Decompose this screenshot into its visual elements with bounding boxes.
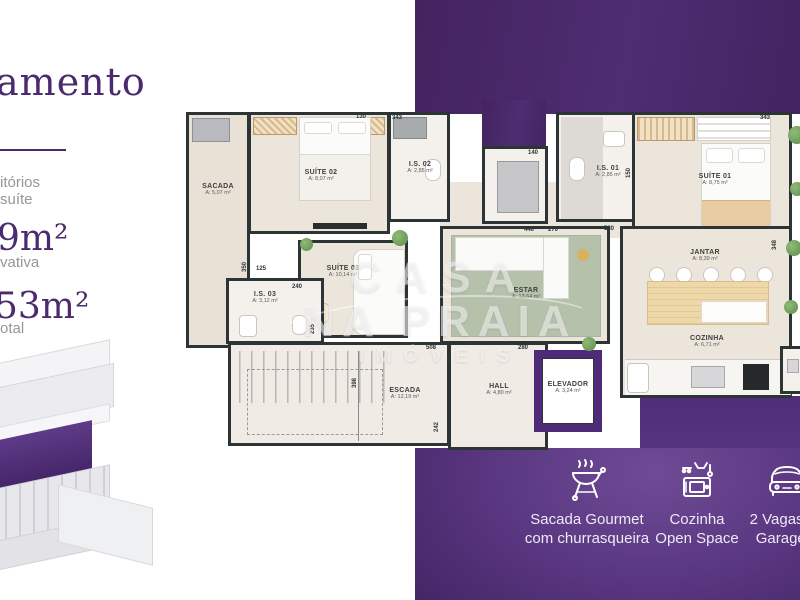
car-icon [722,456,800,504]
plant-graphic [788,126,800,144]
private-area-label-fragment: vativa [0,254,39,271]
room-is-01: I.S. 01 A: 2,85 m² [556,112,636,222]
tv-graphic [313,223,367,229]
dimension-label: 440 [524,227,534,233]
room-label: SUÍTE 01 A: 8,75 m² [675,173,755,186]
building-render [0,338,150,583]
room-label: SACADA A: 5,07 m² [189,183,247,196]
watermark-line3: IMÓVEIS [285,347,595,366]
pillow-graphic [338,122,366,134]
pillow-graphic [738,148,765,163]
wardrobe-graphic [253,117,297,135]
room-label: JANTAR A: 8,39 m² [665,249,745,262]
marketing-floorplan-page: amento itórios suíte 9m² vativa 53m² ota… [0,0,800,600]
watermark-line2: NA PRAIA [285,300,595,344]
dimension-label: 150 [626,168,632,178]
amenity-caption: Garagem [722,529,800,548]
dimension-label: 125 [256,266,266,272]
dimension-label: 343 [760,115,770,121]
sink-graphic [239,315,257,337]
sink-graphic [691,366,725,388]
private-area-value: 9m² [0,218,68,259]
wardrobe-graphic [637,117,695,141]
room-jantar-cozinha: JANTAR A: 8,39 m² COZINHA A: 6,71 m² [620,226,792,398]
plant-graphic [786,240,800,256]
room-label: ESCADA A: 12,19 m² [365,387,445,400]
room-label: COZINHA A: 6,71 m² [667,335,747,348]
elevator-cab-graphic: ELEVADOR A: 3,24 m² [542,358,594,424]
dimension-label: 348 [772,240,778,250]
watermark: CASA NA PRAIA IMÓVEIS [285,256,595,366]
title-divider [0,149,66,151]
total-area-label-fragment: otal [0,320,24,337]
sink-graphic [787,359,799,373]
fridge-graphic [627,363,649,393]
bottom-purple-extension [640,396,800,456]
room-label: ELEVADOR A: 3,24 m² [543,381,593,394]
dimension-label: 580 [604,226,614,232]
cooktop-graphic [743,364,769,390]
room-suite-02: SUÍTE 02 A: 8,07 m² [248,112,390,234]
plant-graphic [784,300,798,314]
page-title-fragment: amento [0,60,146,104]
counter-island-graphic [701,301,767,323]
suite-text-fragment: suíte [0,191,33,208]
plant-graphic [300,238,313,251]
room-laundry [482,146,548,224]
bed-graphic [299,117,371,201]
dimension-label: 242 [434,422,440,432]
shower-graphic [497,161,539,213]
ac-unit-graphic [192,118,230,142]
top-right-purple-panel [415,0,800,114]
amenity-caption: 2 Vagas de [722,510,800,529]
utility-room-fragment [780,346,800,394]
pillow-graphic [304,122,332,134]
dimension-label: 270 [548,227,558,233]
dimension-label: 140 [528,150,538,156]
kitchen-counter-graphic [625,359,791,395]
watermark-line1: CASA [285,256,595,300]
dimension-label: 343 [392,115,402,121]
room-is-02: I.S. 02 A: 2,85 m² [388,112,450,222]
stairs-dashed-outline [247,369,383,435]
plant-graphic [790,182,800,196]
room-label: I.S. 02 A: 2,85 m² [393,161,447,174]
bedrooms-text-fragment: itórios [0,174,40,191]
plant-graphic [392,230,408,246]
dimension-label: 350 [242,262,248,272]
dimension-label: 398 [352,378,358,388]
amenity-vagas-garagem: 2 Vagas de Garagem [722,456,800,548]
room-label: SUÍTE 02 A: 8,07 m² [281,169,361,182]
room-label: HALL A: 4,80 m² [461,383,537,396]
dimension-label: 130 [356,114,366,120]
purple-notch [482,100,546,150]
sink-graphic [603,131,625,147]
pillow-graphic [706,148,733,163]
